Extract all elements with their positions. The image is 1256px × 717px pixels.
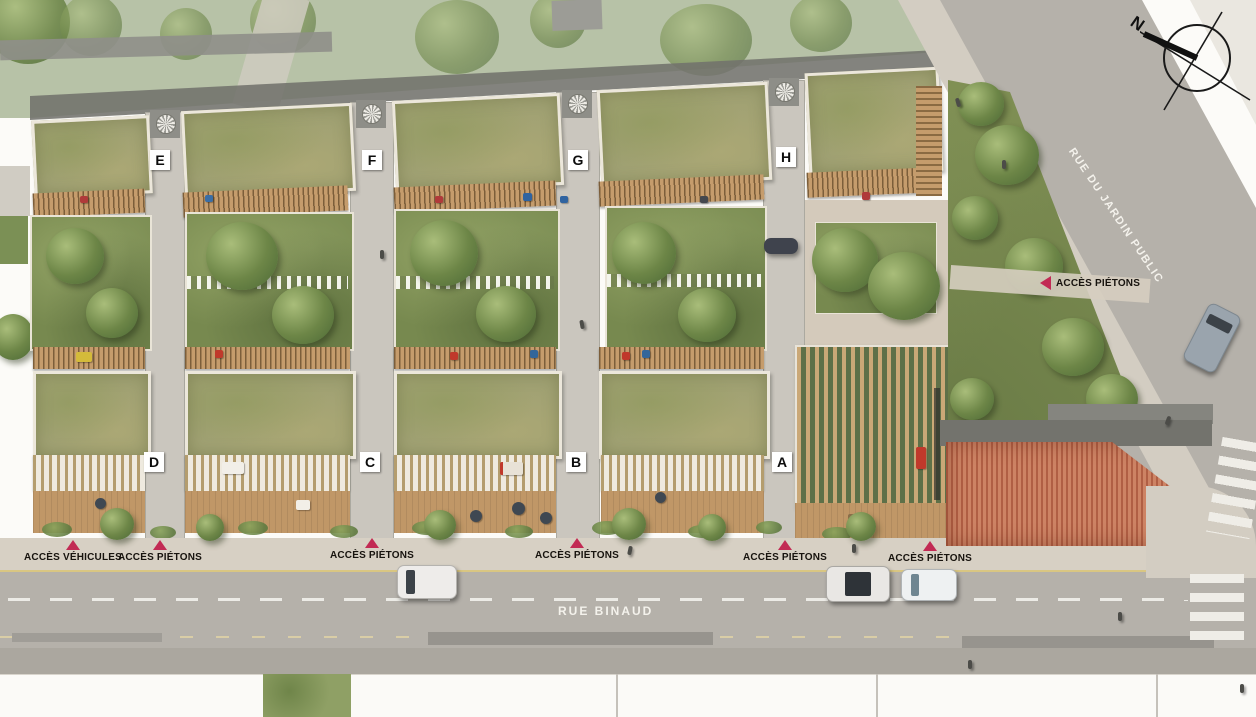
furniture [523,193,532,201]
green-roof [181,103,356,199]
tree [100,508,134,540]
road-edge-line [0,570,1192,572]
car-windshield [406,570,415,594]
crosswalk-binaud [1190,574,1244,646]
tree [206,222,278,290]
access-triangle-icon [153,540,167,550]
spiral-stair-icon [568,94,588,114]
person [1002,160,1006,169]
person [1240,684,1244,693]
terrace-pergola [394,455,556,491]
tree [46,228,104,284]
compass-icon [1140,8,1256,118]
sidewalk-south [0,648,1256,674]
tree [678,288,736,342]
building-badge-a: A [772,452,792,472]
tree [950,378,994,420]
furniture [916,447,926,469]
tree [958,82,1004,126]
furniture [642,350,650,358]
access-triangle-icon [570,538,584,548]
tree [612,222,676,284]
building-badge-g: G [568,150,588,170]
access-marker-pedestrian: ACCÈS PIÉTONS [324,538,420,561]
furniture [655,492,666,503]
spiral-stair-icon [156,114,176,134]
access-triangle-icon [778,540,792,550]
tree [952,196,998,240]
rue-binaud-label: RUE BINAUD [558,604,653,618]
furniture [76,352,92,362]
furniture [296,500,310,510]
furniture [450,352,458,360]
access-label: ACCÈS PIÉTONS [118,552,202,563]
green-roof [33,371,151,459]
green-roof [599,371,770,459]
tree [410,220,478,286]
furniture [700,196,708,203]
building-badge-h: H [776,147,796,167]
building-label: B [571,454,581,470]
bush [42,522,72,537]
access-triangle-icon [66,540,80,550]
tree [196,514,224,541]
south-lot-divider [876,674,878,717]
spiral-stair-icon [362,104,382,124]
south-buildings [0,674,1256,717]
tree [1042,318,1104,376]
car [901,569,957,601]
compass: N [1140,8,1256,118]
access-marker-pedestrian: ACCÈS PIÉTONS [737,540,833,563]
parked-car [764,238,798,254]
building-label: G [573,152,584,168]
person [1118,612,1122,621]
car [826,566,890,602]
picket-fence [396,276,554,289]
tree [0,314,34,360]
access-marker-pedestrian-right: ACCÈS PIÉTONS [1040,276,1140,290]
balcony-deck [33,189,146,218]
furniture [470,510,482,522]
wood-stairs [916,86,942,196]
south-lot-divider [1156,674,1158,717]
bush [756,521,782,534]
building-label: C [365,454,375,470]
building-badge-b: B [566,452,586,472]
access-label: ACCÈS PIÉTONS [330,550,414,561]
bush [505,525,533,538]
furniture [222,462,244,474]
access-label: ACCÈS PIÉTONS [743,552,827,563]
tree [975,125,1039,185]
road-center-line [8,598,1188,601]
access-triangle-icon [923,541,937,551]
furniture [215,350,223,358]
car-cabin [845,572,871,596]
furniture [435,196,443,203]
tree [612,508,646,540]
furniture [80,196,88,203]
furniture [622,352,630,360]
building-badge-f: F [362,150,382,170]
south-garden-strip [263,674,351,717]
tree [86,288,138,338]
bush [330,525,358,538]
terrace-pergola [33,455,145,491]
furniture [560,196,568,203]
green-roof [392,93,564,193]
furniture [512,502,525,515]
tree [846,512,876,541]
access-label: ACCÈS PIÉTONS [888,553,972,564]
car-windshield [911,574,919,596]
green-roof [185,371,356,459]
bush [238,521,268,535]
park-building [551,0,602,31]
south-parapet [428,632,713,645]
building-label: D [149,454,159,470]
green-roof [597,82,773,188]
tree [272,286,334,344]
left-hedge [0,216,28,264]
person [968,660,972,669]
access-marker-pedestrian: ACCÈS PIÉTONS [529,538,625,561]
tree [868,252,940,320]
building-label: A [777,454,787,470]
furniture [95,498,106,509]
furniture [500,462,523,475]
spiral-stair-icon [775,82,795,102]
building-badge-d: D [144,452,164,472]
person [380,250,384,259]
site-plan-canvas: ACCÈS VÉHICULES ACCÈS PIÉTONS ACCÈS PIÉT… [0,0,1256,717]
tree [476,286,536,342]
furniture [205,195,213,202]
south-lot-divider [616,674,618,717]
south-parapet [12,633,162,642]
building-label: F [368,152,377,168]
furniture [862,192,870,200]
building-label: E [155,152,164,168]
access-label: ACCÈS VÉHICULES [24,552,122,563]
access-label: ACCÈS PIÉTONS [1056,278,1140,289]
access-label: ACCÈS PIÉTONS [535,550,619,561]
pergola-roof-a [795,345,954,507]
car-windshield [1205,313,1233,334]
furniture [540,512,552,524]
tree [424,510,456,540]
tree [415,0,499,74]
access-marker-pedestrian: ACCÈS PIÉTONS [112,540,208,563]
access-triangle-icon [365,538,379,548]
green-roof [31,115,153,199]
furniture [530,350,538,358]
person [852,544,856,553]
access-triangle-icon [1040,276,1051,290]
balcony-deck [185,347,350,369]
green-roof [394,371,562,459]
building-label: H [781,149,791,165]
terrace-pergola [601,455,764,491]
tree [698,514,726,541]
left-path [0,166,30,216]
building-badge-c: C [360,452,380,472]
terrace-pergola [185,455,350,491]
building-badge-e: E [150,150,170,170]
car [397,565,457,599]
